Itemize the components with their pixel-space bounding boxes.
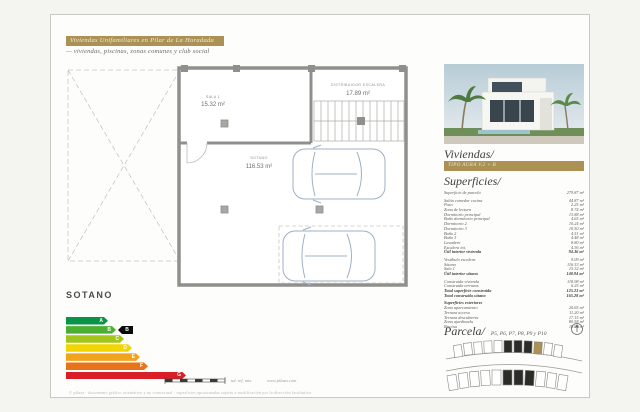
superficies-row-label: Útil interior sótano: [444, 271, 478, 276]
villa-render-photo: [444, 64, 584, 144]
energy-bar: D: [66, 344, 186, 352]
energy-bar: E: [66, 353, 186, 361]
energy-letter: B: [107, 327, 111, 333]
viviendas-heading: Viviendas/: [444, 147, 494, 162]
room-label-sala1: SALA 1: [206, 95, 220, 99]
parcel-lots-bottom: [447, 370, 568, 391]
energy-bar: C: [66, 335, 186, 343]
superficies-row-label: Superficie de parcela: [444, 190, 481, 195]
room-area-distribuidor: 17.89 m²: [346, 91, 370, 97]
site-plan: [444, 337, 584, 397]
type-banner: TIPO AURA V.2 + B: [444, 161, 584, 171]
energy-arrow-icon: F: [66, 362, 148, 370]
stair-newel-column: [357, 117, 365, 125]
room-area-sala1: 15.32 m²: [201, 102, 225, 108]
superficies-row-value: 279.87 m²: [567, 190, 584, 195]
energy-letter: A: [99, 318, 103, 324]
project-title-banner: Viviendas Unifamiliares en Pilar de La H…: [66, 36, 224, 46]
energy-letter: D: [123, 345, 127, 351]
room-label-distribuidor: DISTRIBUIDOR ESCALERA: [331, 83, 386, 87]
graphic-scale-bar: [164, 377, 226, 385]
drawing-sheet: Viviendas Unifamiliares en Pilar de La H…: [50, 14, 590, 398]
superficies-row-label: Útil interior vivienda: [444, 249, 481, 254]
superficies-row-value: 165.28 m²: [566, 293, 584, 298]
superficies-row: Total construida sótano 165.28 m²: [444, 293, 584, 298]
superficies-row: Útil interior sótano 140.94 m²: [444, 271, 584, 276]
parcel-boundary-dashed: [68, 70, 180, 261]
energy-efficiency-label: A B C D: [66, 317, 186, 385]
energy-letter: F: [140, 363, 143, 369]
energy-arrow-icon: D: [66, 344, 132, 352]
room-area-sotano: 116.53 m²: [246, 164, 273, 170]
energy-arrow-icon: E: [66, 353, 140, 361]
energy-bar: A: [66, 317, 186, 325]
basement-floor-plan: SALA 1 15.32 m² DISTRIBUIDOR ESCALERA 17…: [61, 63, 416, 298]
superficies-table: Superficie de parcela 279.87 m² Salón co…: [444, 190, 584, 329]
superficies-row-label: Total construida sótano: [444, 293, 486, 298]
superficies-row: Superficie de parcela 279.87 m²: [444, 190, 584, 195]
floor-name-label: SOTANO: [66, 290, 113, 300]
legal-disclaimer: © pilaza · documento gráfico orientativo…: [69, 390, 409, 395]
energy-arrow-icon: C: [66, 335, 124, 343]
north-arrow-icon: [570, 322, 584, 336]
superficies-row: Útil interior vivienda 94.36 m²: [444, 249, 584, 254]
energy-arrow-icon: A: [66, 317, 108, 325]
energy-letter: E: [132, 354, 135, 360]
parcel-lots-top: [453, 341, 563, 358]
room-label-sotano: SOTANO: [250, 156, 267, 160]
energy-arrow-icon: B: [66, 326, 116, 334]
superficies-row-value: 140.94 m²: [566, 271, 584, 276]
website-text: www.pilaza.com: [267, 378, 296, 383]
energy-bar: F: [66, 362, 186, 370]
superficies-heading: Superficies/: [444, 174, 501, 189]
project-subtitle: — viviendas, piscinas, zonas comunes y c…: [66, 48, 209, 55]
energy-letter: C: [115, 336, 119, 342]
scale-caption: ud. ref. mts.: [231, 378, 252, 383]
superficies-row-value: 94.36 m²: [569, 249, 584, 254]
parcela-heading: Parcela/: [444, 324, 485, 338]
